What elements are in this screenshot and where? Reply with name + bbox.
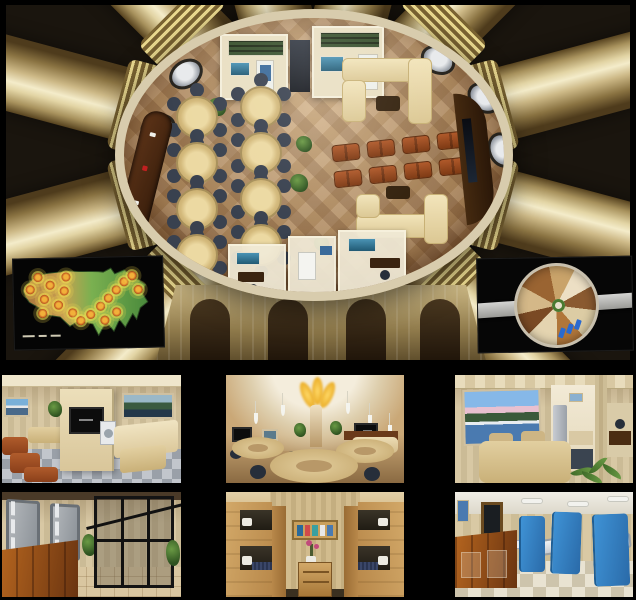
gallery-medical-bay xyxy=(455,492,633,597)
dining-table xyxy=(240,178,282,220)
book xyxy=(297,525,303,536)
dining-table xyxy=(176,234,218,276)
landscape-art xyxy=(4,397,30,417)
drum-arch xyxy=(420,299,460,360)
cage-brace xyxy=(86,503,181,530)
bunk-opening xyxy=(240,510,272,530)
loveseat xyxy=(331,143,361,163)
wall-art xyxy=(320,56,344,72)
bedding xyxy=(358,562,378,570)
map-legend xyxy=(51,335,61,337)
wall-art xyxy=(348,238,376,252)
gallery-entry-vault xyxy=(2,492,181,597)
security-cage xyxy=(94,496,174,588)
dining-table xyxy=(120,445,166,474)
collage-canvas xyxy=(0,0,636,600)
office-chair xyxy=(248,284,258,294)
exam-light xyxy=(567,501,589,507)
pendant-light xyxy=(346,403,350,414)
desk-glass-panel xyxy=(487,550,507,578)
support-column xyxy=(310,405,322,447)
lazy-susan xyxy=(248,444,268,452)
coffee-table xyxy=(376,96,400,111)
coffee-table xyxy=(386,186,410,199)
desk xyxy=(238,272,264,282)
armchair xyxy=(24,467,58,482)
cabin-door xyxy=(256,60,274,92)
side-table xyxy=(28,427,64,443)
cage-bar xyxy=(121,499,124,585)
bunk-opening xyxy=(358,546,390,570)
loveseat xyxy=(401,135,431,155)
exam-light xyxy=(521,498,543,504)
office-cabin xyxy=(228,244,286,300)
map-legend xyxy=(39,335,47,337)
pendant-light xyxy=(254,413,258,424)
dining-table xyxy=(176,142,218,184)
sectional-sofa xyxy=(356,214,434,238)
pillow xyxy=(378,518,388,526)
tv-screen xyxy=(69,407,104,434)
plant xyxy=(166,540,180,566)
bunk-unit-right xyxy=(358,502,404,597)
floorplan-bed xyxy=(566,323,574,334)
tv-logo xyxy=(79,419,93,421)
reception-desk xyxy=(455,530,517,588)
drawer-line xyxy=(303,571,329,573)
loveseat xyxy=(403,161,433,181)
sectional-sofa xyxy=(424,194,448,244)
wall-art xyxy=(230,62,250,76)
lower-cabins xyxy=(228,230,428,301)
loveseat xyxy=(438,157,468,177)
privacy-screen xyxy=(592,513,630,586)
lazy-susan xyxy=(354,447,376,455)
media-console xyxy=(453,91,497,225)
bunk-post xyxy=(344,506,358,597)
round-table xyxy=(232,437,284,459)
cabin-door xyxy=(358,54,378,90)
dining-table xyxy=(176,96,218,138)
plant xyxy=(314,236,329,251)
bedroom-cabin xyxy=(288,236,336,300)
office-cabin xyxy=(338,230,406,294)
plant xyxy=(296,136,312,152)
display-shelf xyxy=(228,40,284,56)
playing-card xyxy=(149,132,156,137)
upper-cabin xyxy=(312,26,384,98)
pendant-light xyxy=(281,405,285,416)
dining-table xyxy=(176,188,218,230)
drum-arch xyxy=(268,299,308,360)
tv-screen xyxy=(462,118,478,183)
porthole-window xyxy=(163,52,209,95)
sectional-sofa xyxy=(356,194,380,218)
bed xyxy=(298,252,316,280)
exam-light xyxy=(607,496,629,502)
loveseat xyxy=(436,131,466,151)
dining-table xyxy=(240,132,282,174)
privacy-screen xyxy=(519,516,545,572)
upper-cabin xyxy=(220,34,288,100)
round-table xyxy=(270,449,358,483)
corridor-opening xyxy=(290,40,310,92)
loveseat xyxy=(366,139,396,159)
dining-table xyxy=(240,224,282,266)
pillow xyxy=(242,556,252,565)
small-art xyxy=(569,393,583,402)
bunk-post xyxy=(272,506,286,597)
book xyxy=(305,525,310,536)
drum-arch xyxy=(190,299,230,360)
orchid-bloom xyxy=(306,540,312,546)
side-room xyxy=(607,403,633,457)
bunk-opening xyxy=(358,510,390,530)
gallery-dining-room xyxy=(455,375,633,483)
lazy-susan xyxy=(296,460,332,472)
plant xyxy=(294,423,306,437)
bedding xyxy=(252,562,272,570)
playing-card xyxy=(132,200,139,205)
sectional-sofa xyxy=(342,80,366,122)
map-legend xyxy=(23,335,35,337)
pillow xyxy=(378,556,388,565)
dining-table xyxy=(240,86,282,128)
book xyxy=(320,525,325,536)
card-bar xyxy=(115,108,175,239)
book xyxy=(312,525,318,536)
floorplan-inset xyxy=(476,256,634,354)
floorplan-bed xyxy=(574,319,582,330)
dining-chair xyxy=(364,467,380,481)
small-art xyxy=(457,500,469,522)
desk-glass-panel xyxy=(461,552,481,578)
drawer-line xyxy=(303,581,329,583)
wall-shelf xyxy=(292,520,338,540)
gallery-lounge-tv-room xyxy=(2,375,181,483)
book xyxy=(327,525,333,536)
dome-interior xyxy=(115,9,513,301)
pillow xyxy=(242,518,252,526)
plant xyxy=(290,174,308,192)
dining-table xyxy=(479,441,571,483)
desk xyxy=(370,258,400,268)
dresser xyxy=(298,562,332,597)
landscape-art xyxy=(122,393,174,419)
orchid-bloom xyxy=(314,544,319,549)
cage-bar xyxy=(97,539,171,542)
reception-desk xyxy=(2,540,78,597)
gallery-bunk-room xyxy=(226,492,404,597)
privacy-screen xyxy=(550,511,582,574)
desk xyxy=(609,431,631,445)
drum-arch xyxy=(346,299,386,360)
us-target-map-inset xyxy=(12,255,165,350)
sectional-sofa xyxy=(408,58,432,124)
plant xyxy=(48,401,62,417)
sectional-sofa xyxy=(342,58,420,82)
bunk-opening xyxy=(240,546,272,570)
plant xyxy=(208,98,226,116)
gallery-dining-hall xyxy=(226,375,404,483)
floor-shadow xyxy=(571,449,593,469)
floorplan-circle xyxy=(513,262,599,348)
porthole-window xyxy=(137,109,180,147)
floorplan-bed xyxy=(558,327,566,338)
porthole-window xyxy=(483,128,513,171)
ceiling xyxy=(2,375,181,387)
door-art xyxy=(260,65,271,81)
door-art xyxy=(363,60,375,78)
kitchen-counter xyxy=(569,431,593,445)
plant xyxy=(330,421,342,435)
wall-art xyxy=(320,246,332,255)
loveseat xyxy=(333,169,363,189)
display-shelf xyxy=(320,32,380,48)
office-chair xyxy=(380,270,390,280)
washer-door xyxy=(104,429,113,438)
playing-card xyxy=(142,165,148,171)
wall-art xyxy=(236,252,260,265)
floorplan-hub xyxy=(552,299,565,312)
dining-chair xyxy=(250,465,266,479)
mirror xyxy=(481,502,503,536)
office-chair xyxy=(615,419,625,429)
bunk-unit-left xyxy=(226,502,272,597)
loveseat xyxy=(368,165,398,185)
